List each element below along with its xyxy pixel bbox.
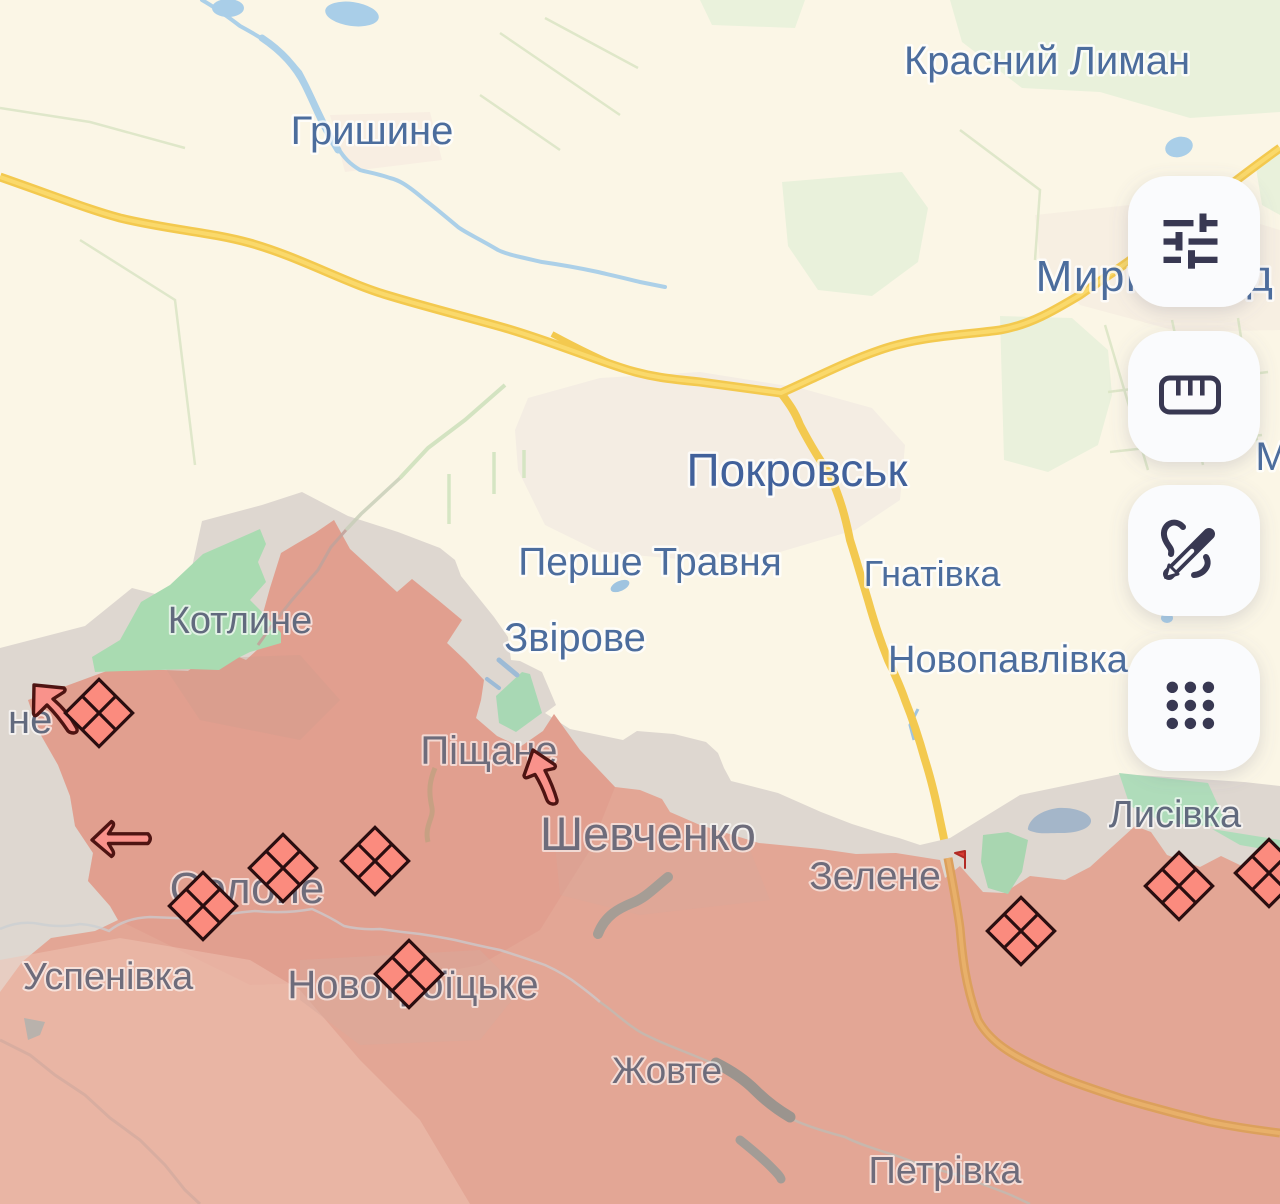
svg-text:Зелене: Зелене — [809, 855, 941, 898]
svg-text:Новопавлівка: Новопавлівка — [888, 639, 1129, 681]
svg-text:Перше Травня: Перше Травня — [518, 541, 782, 584]
svg-text:Красний Лиман: Красний Лиман — [904, 39, 1190, 83]
svg-text:Звірове: Звірове — [504, 616, 646, 660]
svg-text:Гришине: Гришине — [291, 109, 454, 153]
svg-text:Успенівка: Успенівка — [23, 956, 194, 998]
svg-text:М: М — [1255, 435, 1280, 479]
svg-text:Гнатівка: Гнатівка — [864, 553, 1002, 594]
svg-text:Лисівка: Лисівка — [1109, 794, 1242, 836]
svg-text:Покровськ: Покровськ — [687, 444, 909, 496]
svg-text:Котлине: Котлине — [168, 600, 313, 642]
svg-text:Шевченко: Шевченко — [540, 807, 756, 860]
svg-text:Жовте: Жовте — [612, 1050, 722, 1091]
svg-text:Петрівка: Петрівка — [869, 1150, 1023, 1192]
